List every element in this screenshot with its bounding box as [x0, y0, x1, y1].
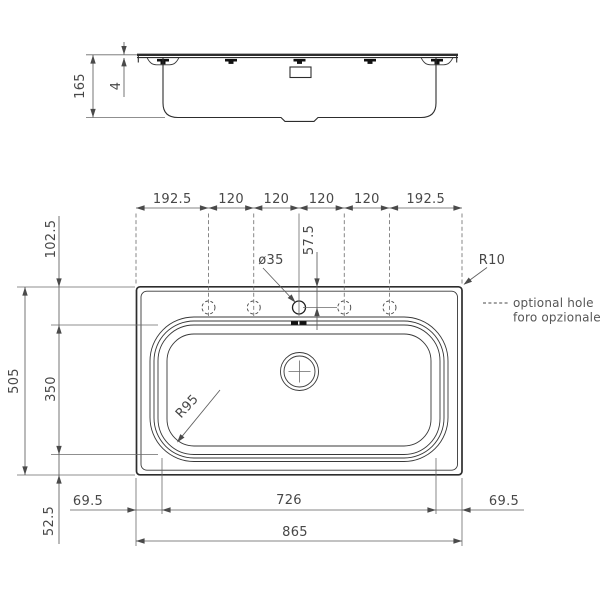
dim-back-ledge: 102.5	[44, 220, 59, 259]
overflow-slot	[291, 321, 298, 325]
dim-hole-diameter: ø35	[258, 253, 283, 268]
dim-hole-offset: 57.5	[302, 225, 317, 255]
side-view: 165 4	[73, 42, 458, 121]
dim-bowl-width: 726	[276, 493, 302, 508]
dim-back-left-offset: 192.5	[153, 192, 192, 207]
dim-rim-height: 4	[109, 82, 124, 91]
arrowhead	[121, 46, 126, 55]
top-dimension-chain: 192.5 120 120 120 120 192.5	[136, 192, 462, 316]
dim-hole-spacing: 120	[309, 192, 335, 207]
arrowhead	[90, 55, 95, 64]
drain	[281, 353, 319, 391]
sink-technical-drawing: 165 4	[0, 0, 600, 600]
overflow-slot	[300, 321, 307, 325]
dim-front-ledge: 52.5	[42, 506, 57, 536]
arrowhead	[121, 58, 126, 67]
fixing-clips	[157, 59, 443, 64]
drawing-canvas: 165 4	[0, 0, 600, 600]
bowl-edge	[158, 325, 440, 455]
dim-hole-spacing: 120	[354, 192, 380, 207]
dim-hole-spacing: 120	[264, 192, 290, 207]
legend: optional hole foro opzionale	[483, 296, 600, 325]
dim-right-ledge: 69.5	[489, 494, 519, 509]
dim-overall-plan-depth: 505	[7, 368, 22, 394]
bowl-bottom-edge	[167, 334, 431, 446]
dim-back-right-offset: 192.5	[406, 192, 445, 207]
dim-hole-spacing: 120	[218, 192, 244, 207]
legend-line-it: foro opzionale	[513, 311, 600, 325]
dim-overall-depth: 165	[73, 73, 88, 99]
bottom-dimension-chain: 69.5 726 69.5 865	[70, 458, 524, 546]
dim-bowl-depth: 350	[44, 376, 59, 402]
bowl-edge-outer	[150, 317, 448, 462]
dim-left-ledge: 69.5	[73, 494, 103, 509]
legend-line-en: optional hole	[513, 296, 594, 310]
overflow-outline	[290, 67, 311, 78]
corner-radius-callout: R10	[462, 253, 505, 287]
bowl-radius-callout: R95	[173, 390, 220, 444]
dim-corner-radius: R10	[479, 253, 505, 268]
dim-overall-width: 865	[282, 525, 308, 540]
bowl-edge-mid	[154, 321, 444, 458]
arrowhead	[90, 109, 95, 118]
